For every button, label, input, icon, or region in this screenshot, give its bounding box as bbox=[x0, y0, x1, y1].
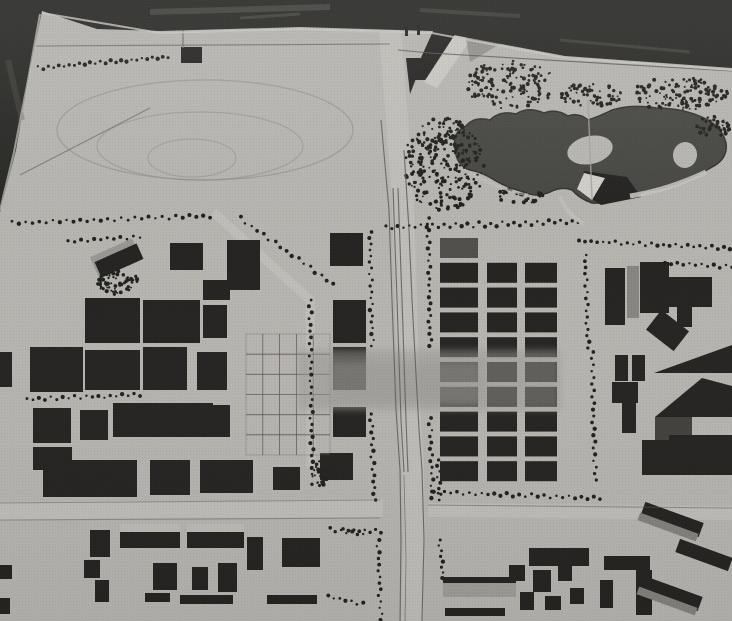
architectural-model-photograph bbox=[0, 0, 732, 621]
film-grain bbox=[0, 0, 732, 621]
model-scene bbox=[0, 0, 732, 621]
